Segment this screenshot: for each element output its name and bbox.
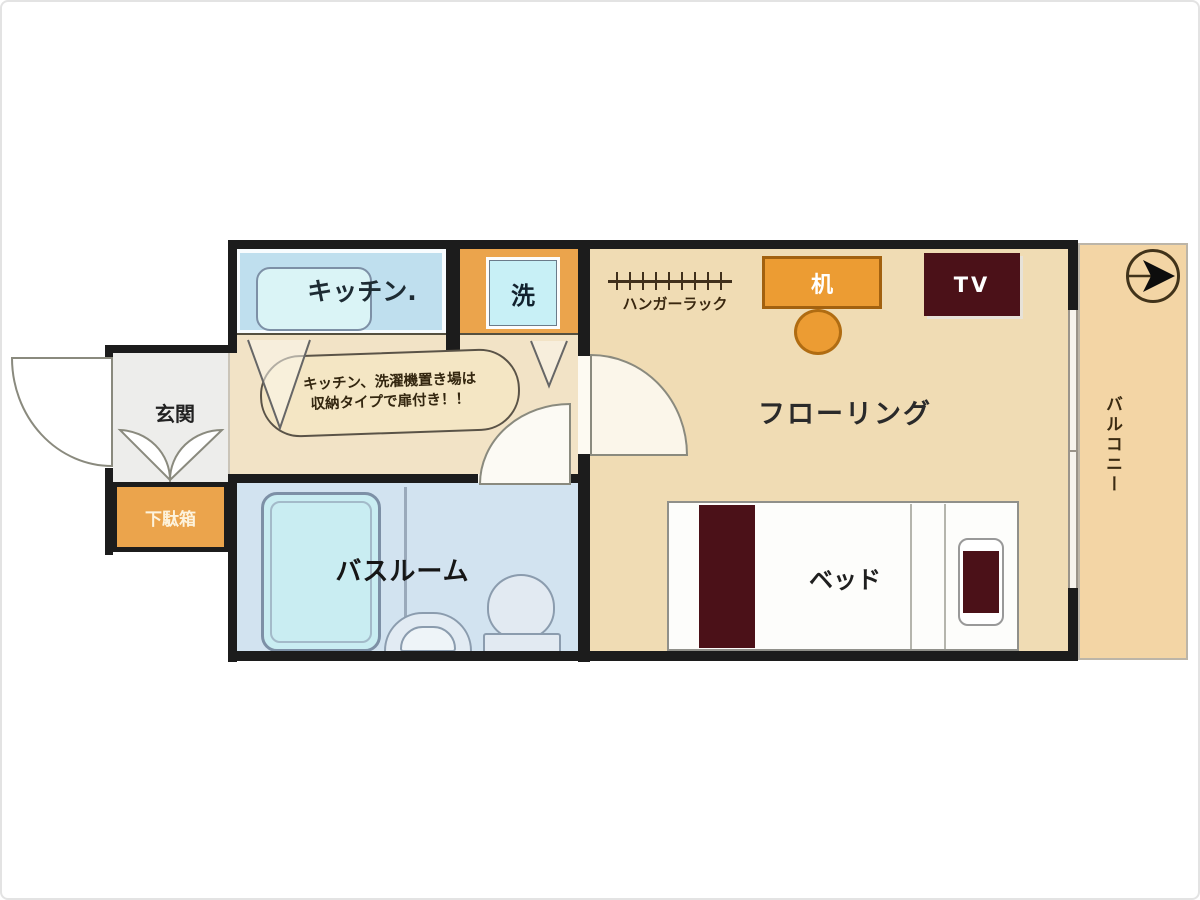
bed-pillow [699, 505, 755, 648]
washing-machine: 洗 [486, 257, 560, 329]
toilet-bowl [487, 574, 555, 640]
shoe-cabinet-label: 下駄箱 [145, 505, 196, 530]
bathroom-label: バスルーム [315, 551, 490, 588]
wall-entrance-top [105, 345, 236, 353]
wall-bottom [228, 651, 1078, 661]
tv: TV [924, 253, 1020, 316]
stool [794, 309, 842, 355]
wall-bathroom-left [228, 474, 237, 662]
desk-glyph: 机 [811, 267, 833, 299]
floor-plan: 洗 机 TV キッチン、洗濯機置き場は 収納タイプで扉付き！！ [0, 0, 1200, 900]
kitchen-counter-edge [236, 333, 578, 335]
bed-side-item [958, 538, 1004, 626]
bed-side-item-pad [963, 551, 999, 613]
shoe-cabinet: 下駄箱 [112, 482, 229, 552]
entrance-door-arc [2, 352, 116, 472]
wall-main-left-lower [578, 454, 590, 662]
bed-fold-line [944, 504, 946, 649]
entrance-step-line [228, 353, 230, 482]
washer-fold-door [528, 338, 570, 392]
wall-top [228, 240, 1078, 249]
kitchen-label: キッチン. [277, 272, 447, 308]
room-balcony [1078, 243, 1188, 660]
kitchen-fold-door [244, 336, 314, 434]
washing-machine-label: 洗 [489, 260, 557, 326]
wall-main-left-upper [578, 240, 590, 356]
flooring-label: フローリング [740, 392, 950, 431]
balcony-window-latch [1068, 450, 1078, 452]
wall-kitchen-left [228, 240, 237, 353]
entrance-label: 玄関 [130, 398, 220, 427]
balcony-window [1068, 310, 1078, 588]
main-room-door-arc [588, 352, 690, 458]
balcony-label: バルコニー [1100, 395, 1125, 565]
bubble-line-2: 収納タイプで扉付き！！ [310, 390, 470, 415]
wall-balcony-lower [1068, 588, 1078, 661]
wall-kitchen-washer-divider [446, 240, 460, 352]
hanger-rack-label: ハンガーラック [600, 293, 750, 314]
hanger-rack-bar [608, 280, 732, 283]
bed-fold-line [910, 504, 912, 649]
desk: 机 [762, 256, 882, 309]
bed-label: ベッド [780, 560, 910, 595]
wall-balcony-upper [1068, 240, 1078, 310]
north-arrow-icon [1126, 249, 1180, 303]
shoe-cabinet-door-arcs [114, 426, 228, 484]
bathroom-sink-bowl [400, 626, 456, 652]
